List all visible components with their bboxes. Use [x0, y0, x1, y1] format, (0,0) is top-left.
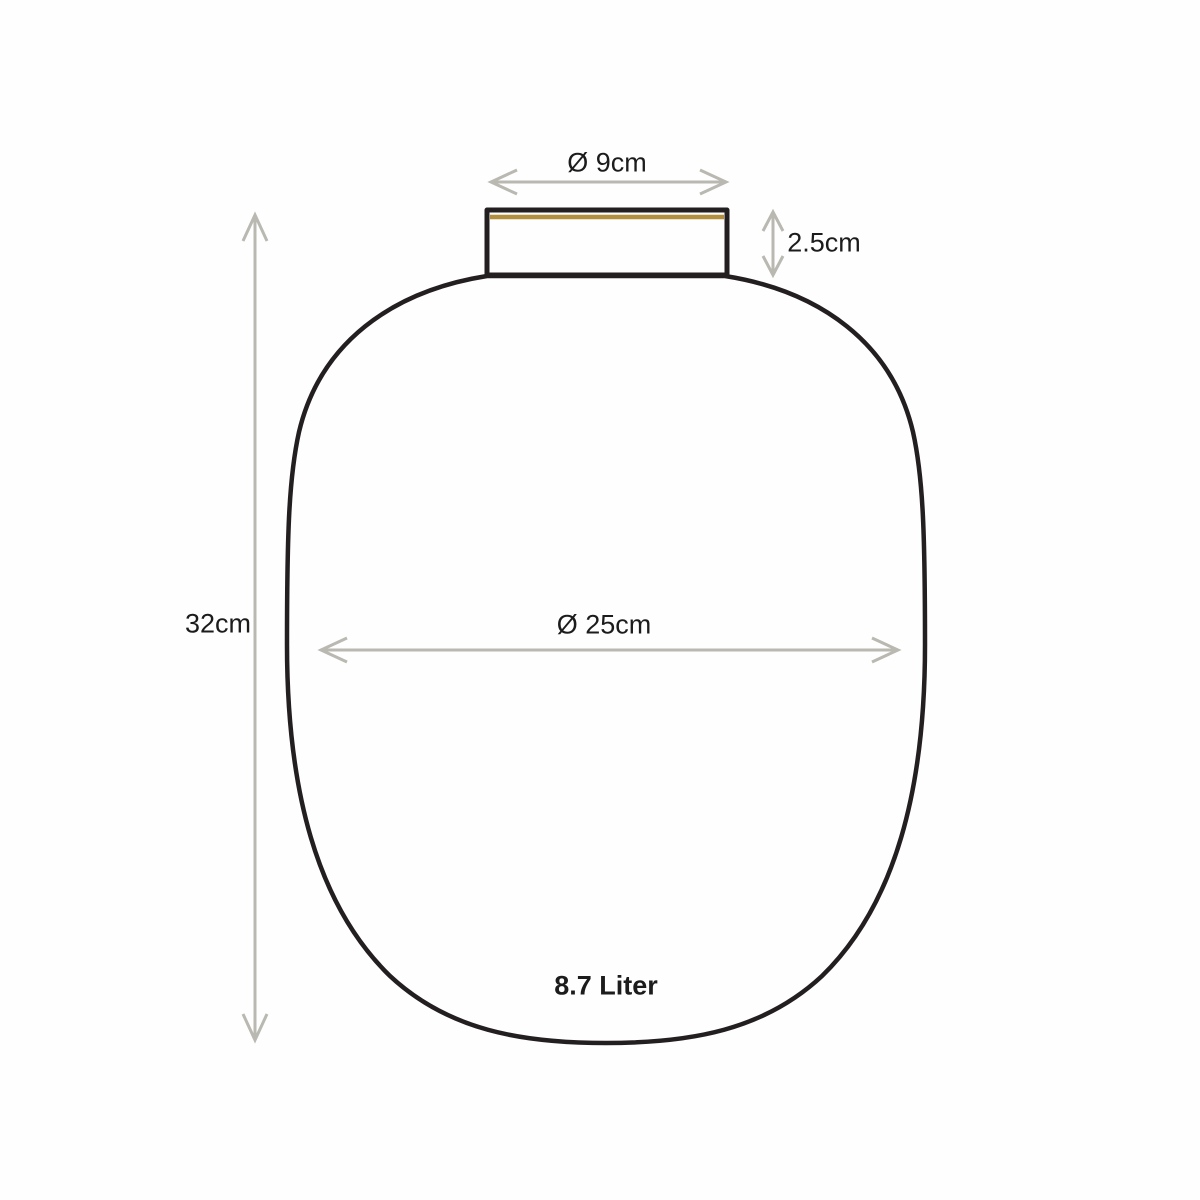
total-height-label: 32cm — [185, 611, 251, 638]
capacity-label: 8.7 Liter — [554, 973, 658, 1000]
vase-dimension-diagram: Ø 9cm 2.5cm 32cm Ø 25cm 8.7 Liter — [0, 0, 1200, 1200]
neck-height-label: 2.5cm — [787, 230, 861, 257]
neck-diameter-label: Ø 9cm — [567, 150, 647, 177]
dim-arrow-body-diameter — [321, 638, 898, 662]
vase-body-outline — [287, 276, 925, 1043]
body-diameter-label: Ø 25cm — [557, 612, 652, 639]
dim-arrow-neck-height — [763, 212, 783, 275]
diagram-linework — [0, 0, 1200, 1200]
vase-neck — [487, 210, 727, 275]
